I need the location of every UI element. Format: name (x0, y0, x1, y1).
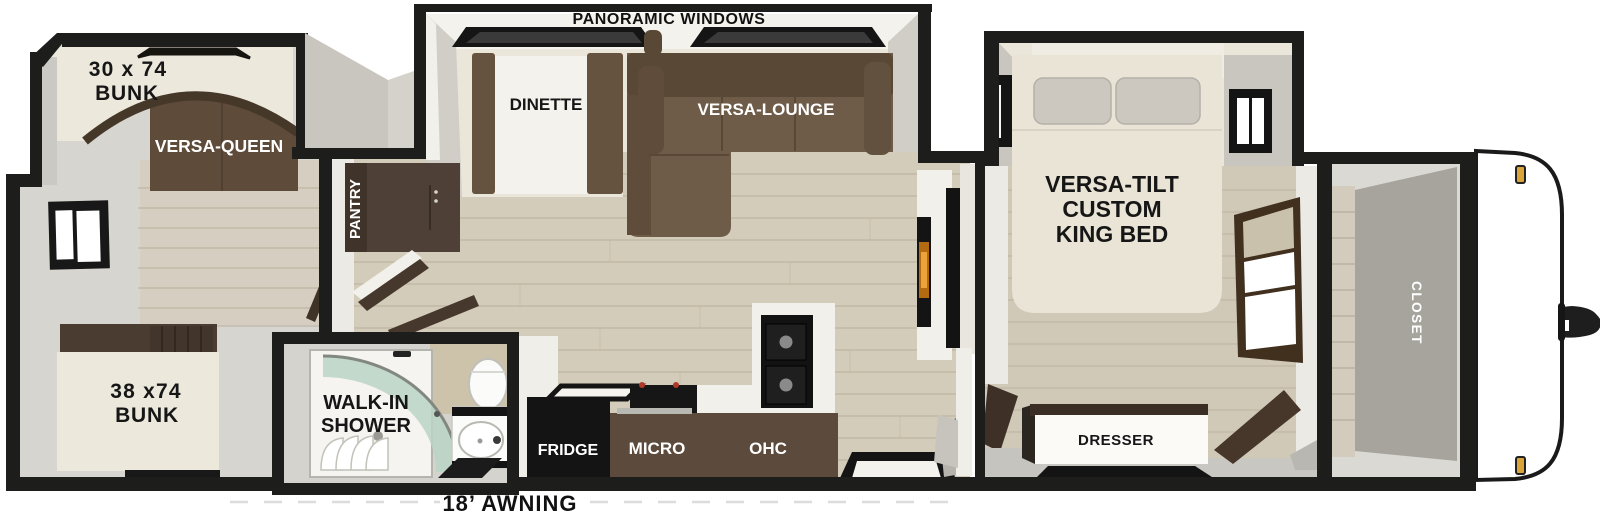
svg-text:DINETTE: DINETTE (510, 95, 583, 114)
svg-text:FRIDGE: FRIDGE (538, 442, 599, 459)
svg-text:VERSA-LOUNGE: VERSA-LOUNGE (698, 100, 835, 119)
svg-text:VERSA-QUEEN: VERSA-QUEEN (155, 136, 283, 156)
svg-text:KING BED: KING BED (1056, 221, 1168, 247)
svg-text:DRESSER: DRESSER (1078, 432, 1154, 449)
svg-text:OHC: OHC (749, 439, 787, 458)
svg-text:30 x 74: 30 x 74 (89, 58, 167, 81)
svg-text:MICRO: MICRO (629, 439, 686, 458)
svg-text:18’ AWNING: 18’ AWNING (442, 491, 577, 516)
svg-text:SHOWER: SHOWER (321, 415, 412, 437)
svg-text:CLOSET: CLOSET (1409, 281, 1424, 345)
svg-text:BUNK: BUNK (95, 82, 159, 105)
svg-text:VERSA-TILT: VERSA-TILT (1045, 171, 1179, 197)
svg-text:WALK-IN: WALK-IN (323, 392, 409, 414)
svg-text:BUNK: BUNK (115, 404, 179, 427)
svg-text:PANTRY: PANTRY (347, 179, 364, 239)
svg-text:38 x74: 38 x74 (110, 380, 181, 403)
svg-text:CUSTOM: CUSTOM (1062, 196, 1161, 222)
svg-text:PANORAMIC WINDOWS: PANORAMIC WINDOWS (573, 11, 766, 28)
